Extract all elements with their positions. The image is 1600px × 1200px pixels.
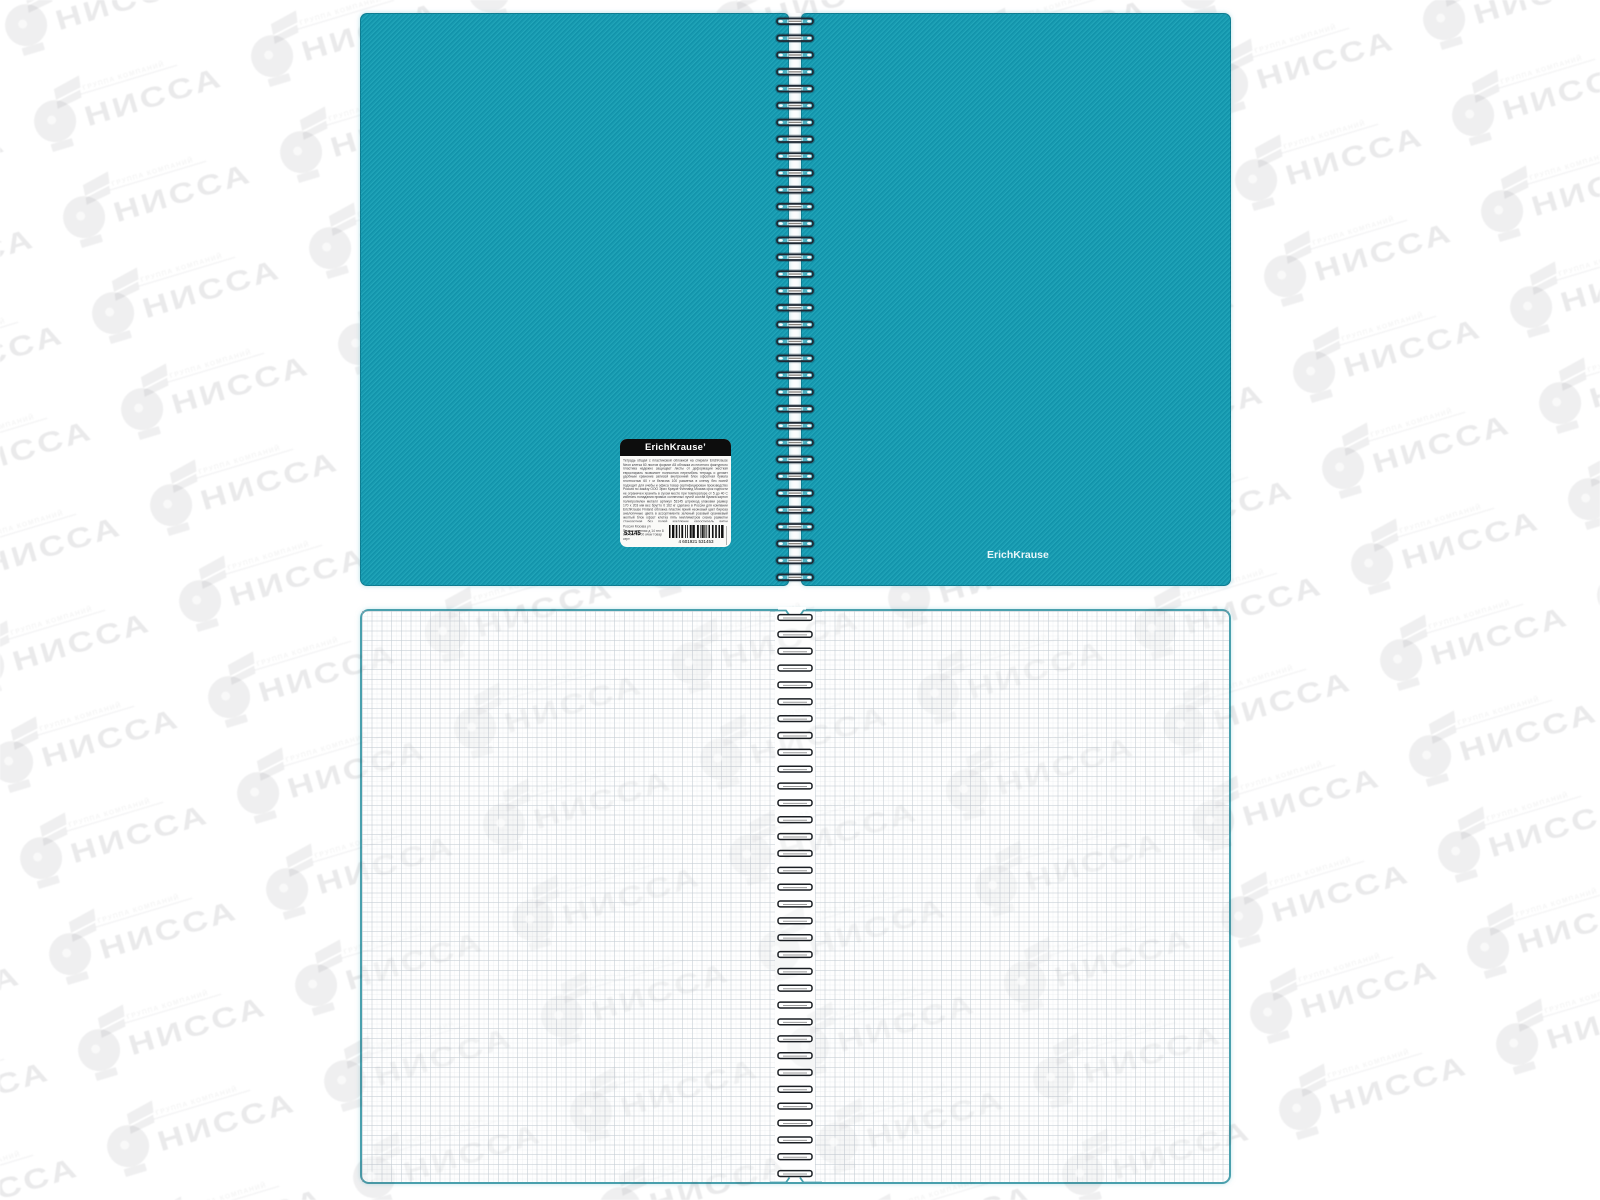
- svg-text:4 601921 531453: 4 601921 531453: [678, 539, 714, 544]
